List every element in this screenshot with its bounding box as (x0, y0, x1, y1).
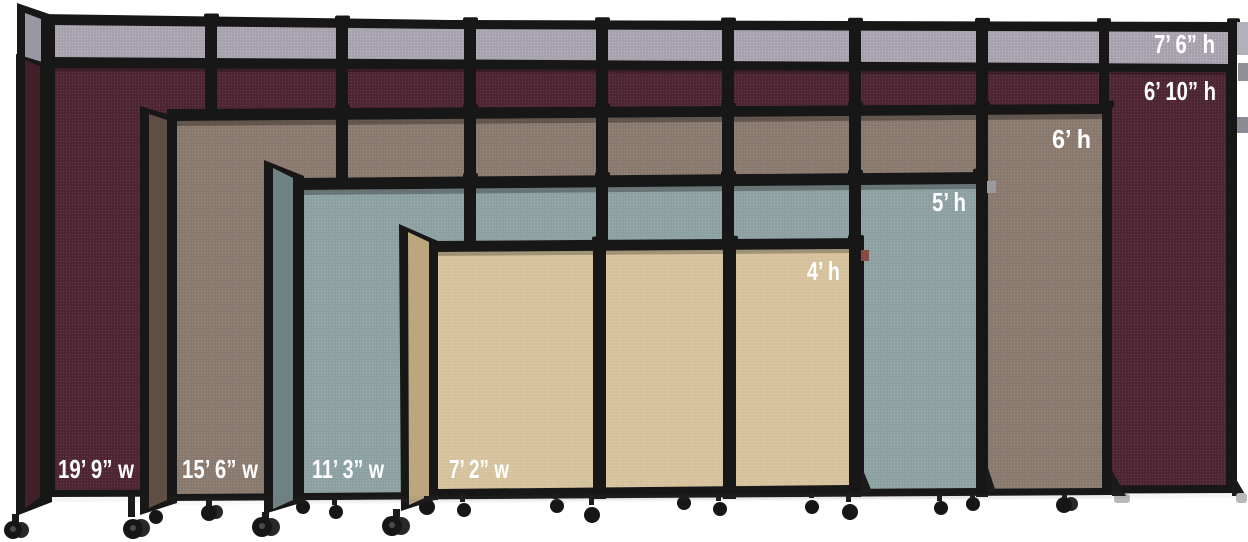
svg-text:19’ 9” w: 19’ 9” w (58, 454, 135, 484)
svg-text:11’ 3” w: 11’ 3” w (312, 454, 385, 484)
svg-text:7’ 6” h: 7’ 6” h (1154, 29, 1215, 59)
svg-text:4’ h: 4’ h (807, 256, 840, 286)
svg-text:7’ 2” w: 7’ 2” w (449, 454, 510, 484)
svg-text:15’ 6” w: 15’ 6” w (182, 454, 259, 484)
svg-text:5’ h: 5’ h (932, 187, 966, 217)
svg-text:6’ h: 6’ h (1052, 124, 1091, 154)
svg-text:6’ 10” h: 6’ 10” h (1144, 76, 1216, 106)
